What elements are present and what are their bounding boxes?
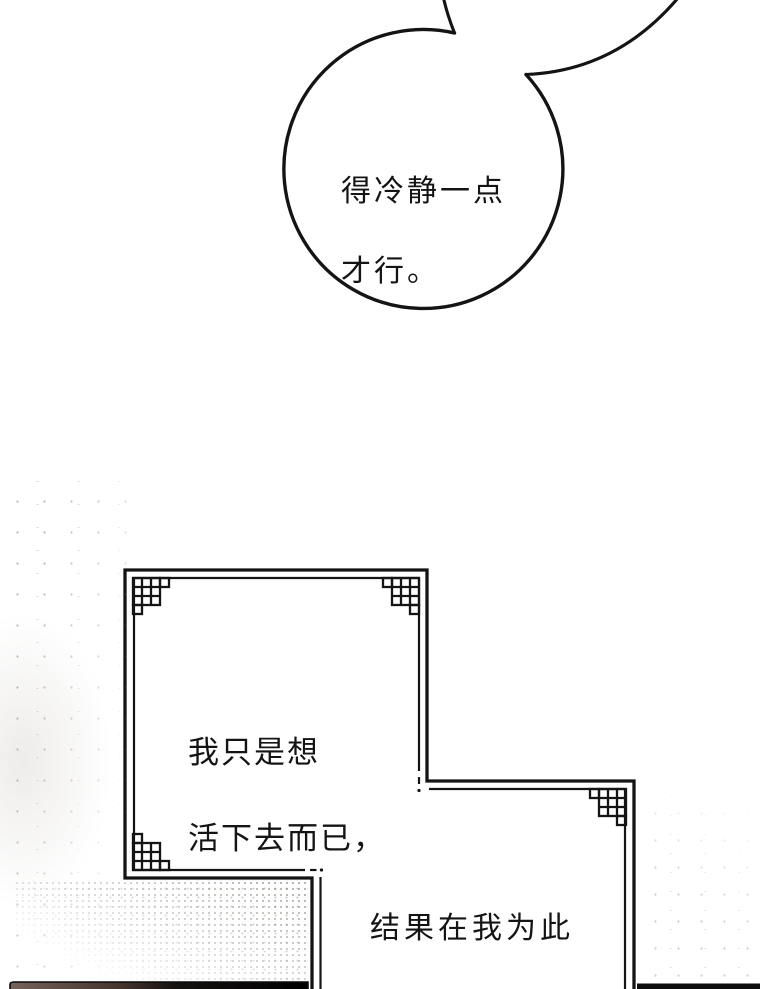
speech-bubble-neck-right (526, 0, 678, 75)
comic-page: 得冷静一点 才行。 我只是想 活下去而已， 结果在我为此 绞尽脑汁时却 被卷入了… (0, 0, 760, 989)
fret-corner-top-right (383, 578, 419, 614)
caption-lower-line-1: 结果在我为此 (370, 909, 600, 949)
next-panel-strip-right (637, 984, 760, 989)
frame-caption-lower: 结果在我为此 绞尽脑汁时却 被卷入了这种 (370, 869, 600, 989)
frame-dot-step (417, 789, 420, 792)
speech-bubble-neck-left (444, 0, 455, 33)
speech-line-1: 得冷静一点 (341, 172, 541, 212)
speech-line-2: 才行。 (341, 252, 541, 292)
fret-corner-bottom-left (133, 834, 169, 870)
caption-upper-line-2: 活下去而已， (188, 817, 408, 860)
next-panel-strip-left (10, 982, 308, 989)
fret-corner-step-right (590, 789, 626, 825)
fret-corner-top-left (133, 578, 169, 614)
speech-bubble-text: 得冷静一点 才行。 (341, 132, 541, 332)
caption-upper-line-1: 我只是想 (188, 731, 408, 774)
